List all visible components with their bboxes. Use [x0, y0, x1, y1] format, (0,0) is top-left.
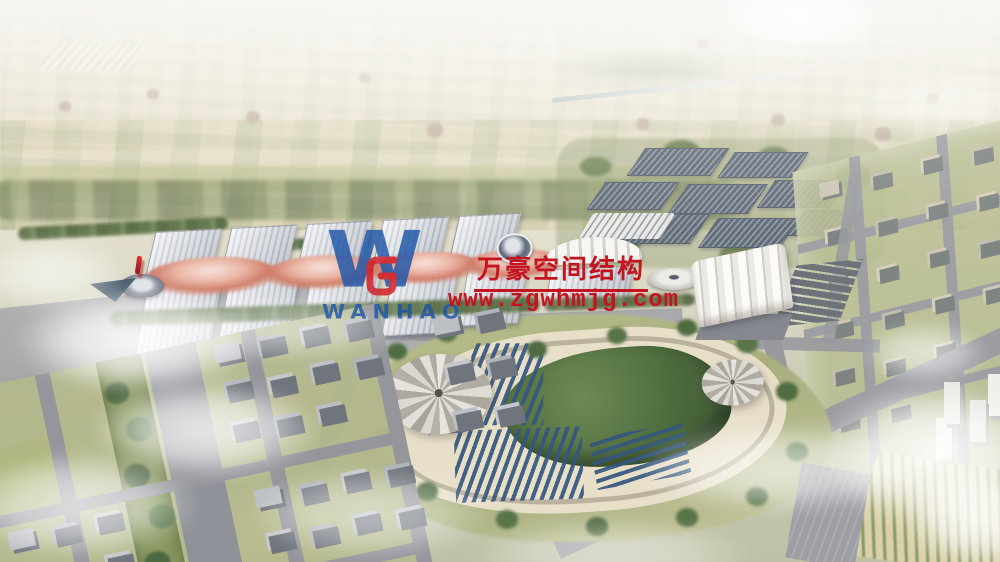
aerial-rendering-canvas: W WANHAO 万豪空间结构 www.zgwhmjg.com [0, 0, 1000, 562]
city-buildings [431, 313, 460, 336]
cloud [150, 292, 415, 362]
cloud [862, 322, 987, 384]
white-membrane-hall [545, 235, 642, 266]
cloud [248, 468, 493, 560]
